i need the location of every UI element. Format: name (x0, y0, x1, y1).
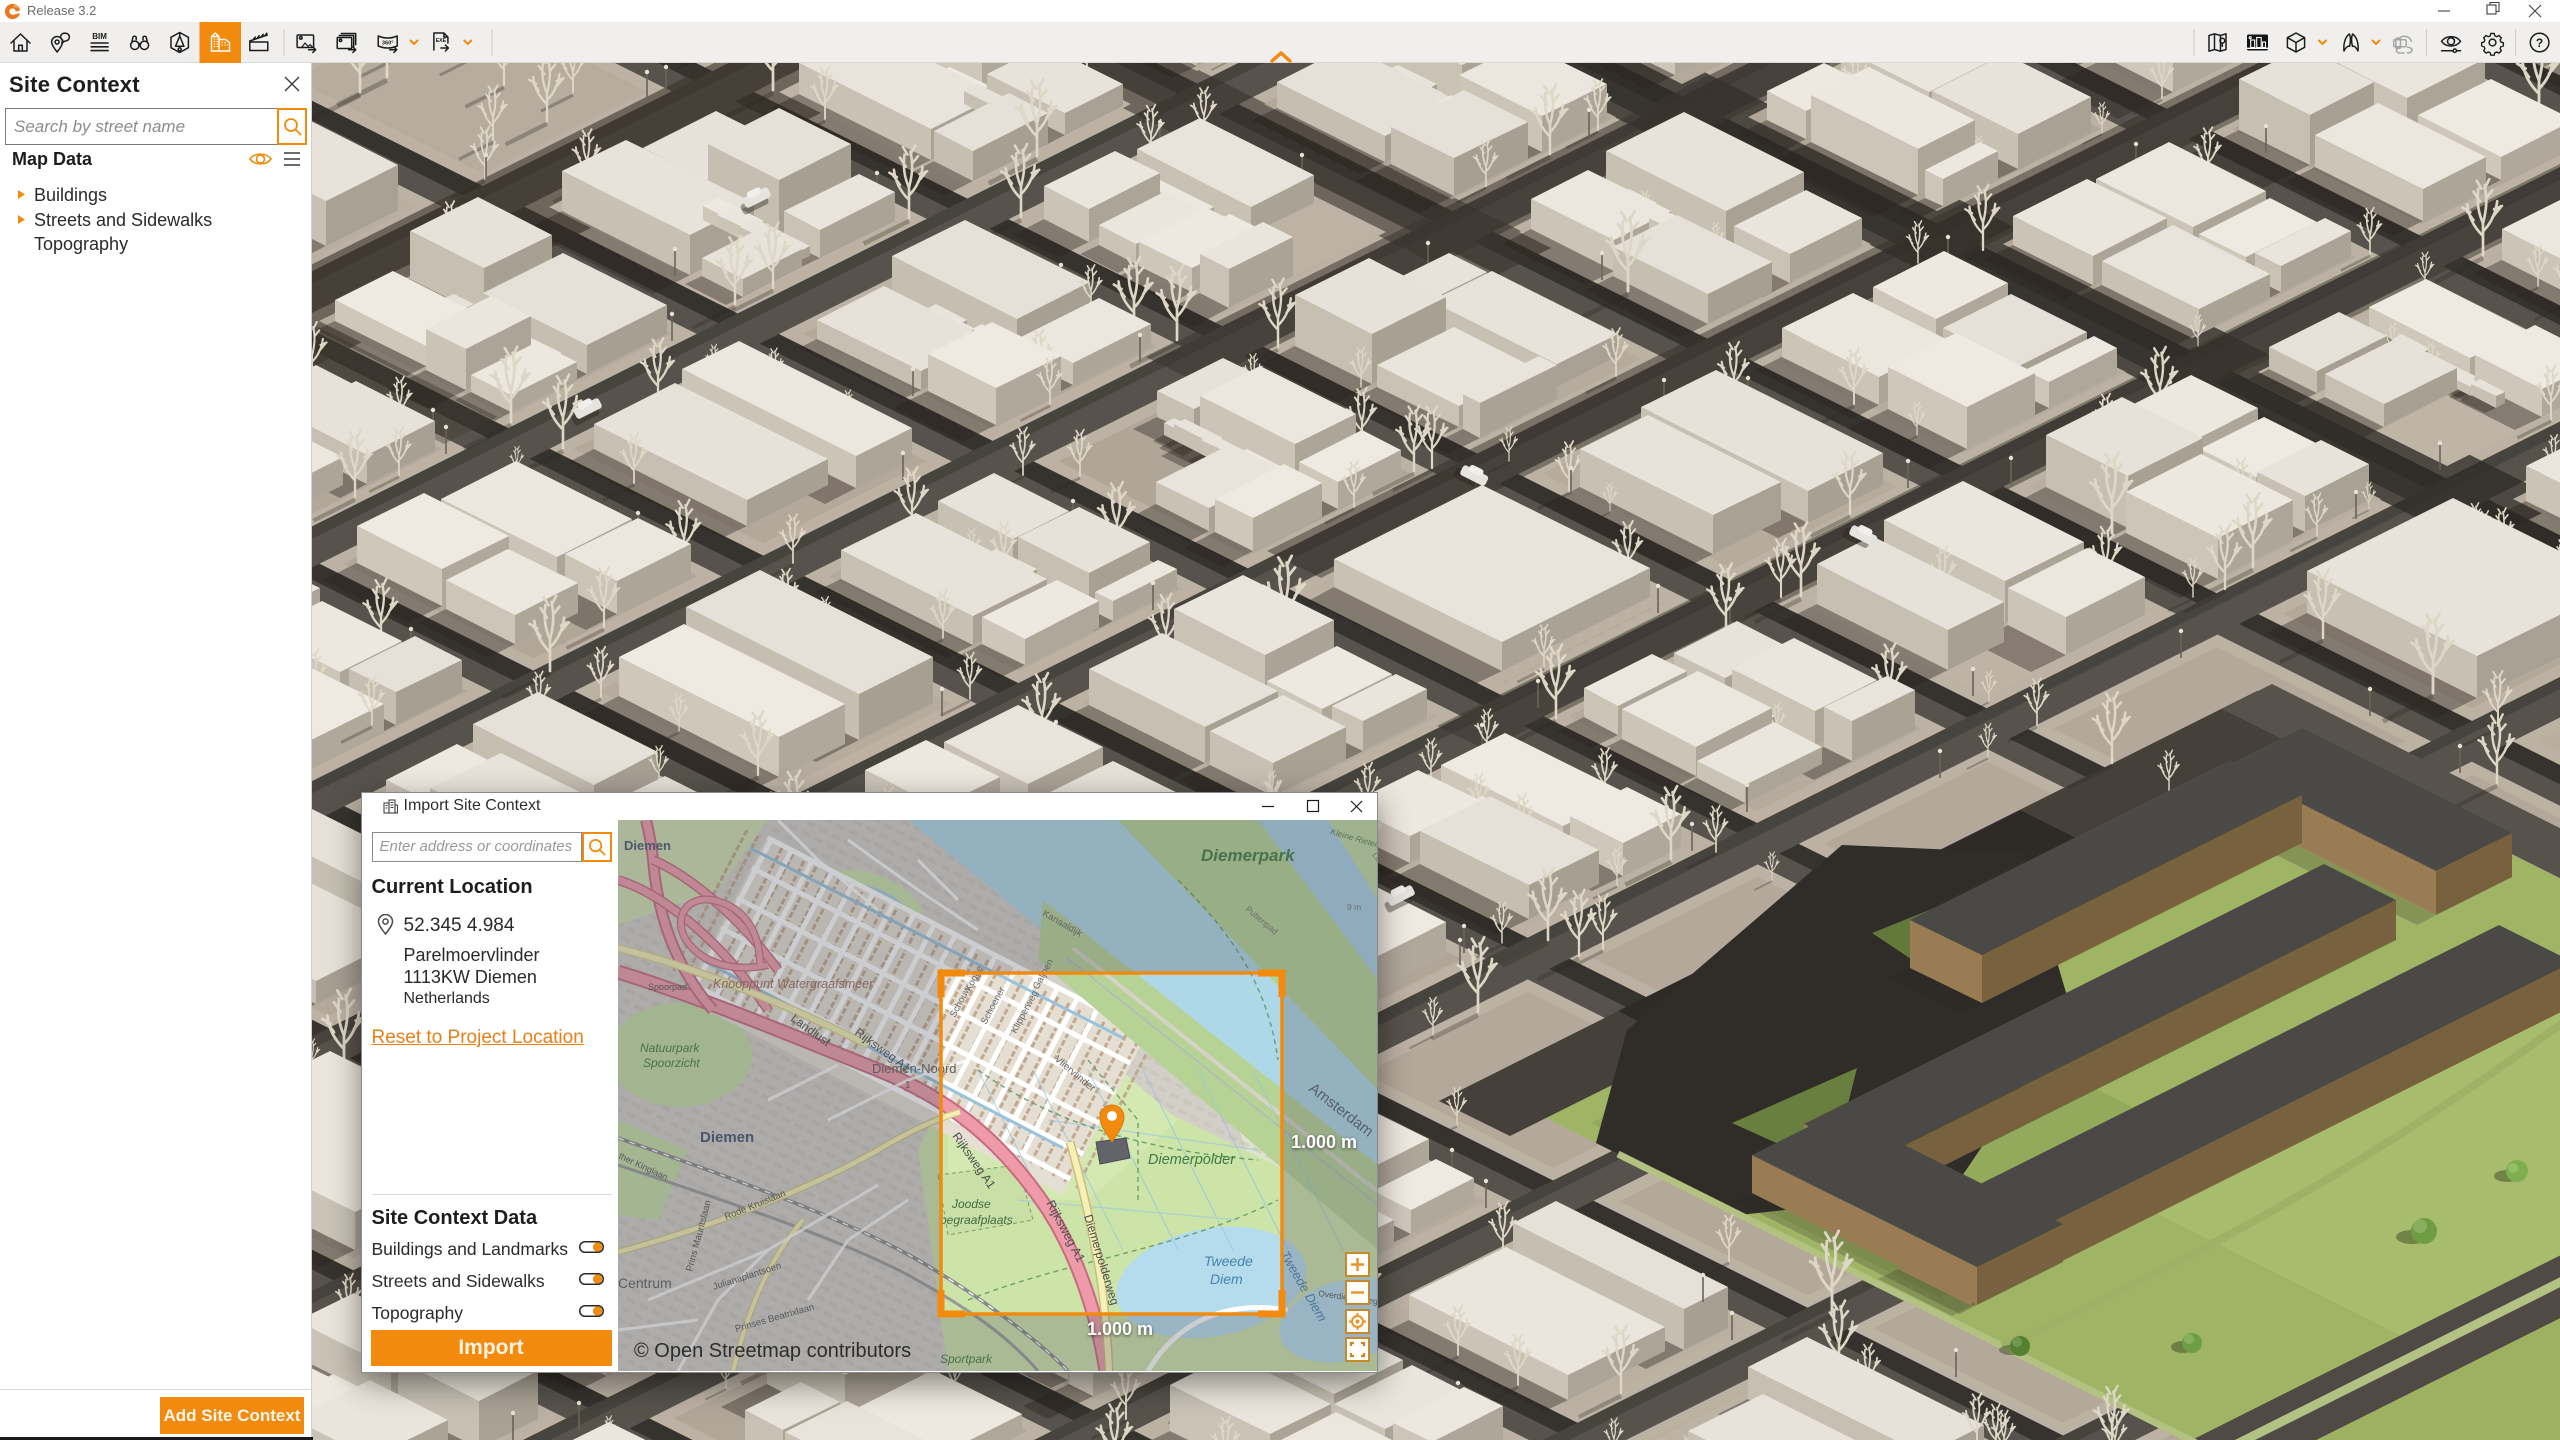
svg-text:begraafplaats: begraafplaats (940, 1213, 1013, 1227)
svg-text:1.000 m: 1.000 m (1087, 1319, 1153, 1339)
svg-text:BIM: BIM (92, 32, 107, 41)
svg-text:Diem: Diem (1210, 1271, 1243, 1287)
svg-text:Joodse: Joodse (951, 1197, 991, 1211)
svg-text:© Open Streetmap contributors: © Open Streetmap contributors (634, 1340, 911, 1362)
svg-text:360°: 360° (382, 40, 394, 46)
svg-text:?: ? (2536, 36, 2543, 50)
svg-text:Tweede: Tweede (1204, 1253, 1253, 1269)
svg-text:EXE: EXE (436, 38, 447, 44)
svg-text:1.000 m: 1.000 m (1291, 1132, 1357, 1152)
svg-text:Diemerpolder: Diemerpolder (1148, 1152, 1236, 1168)
